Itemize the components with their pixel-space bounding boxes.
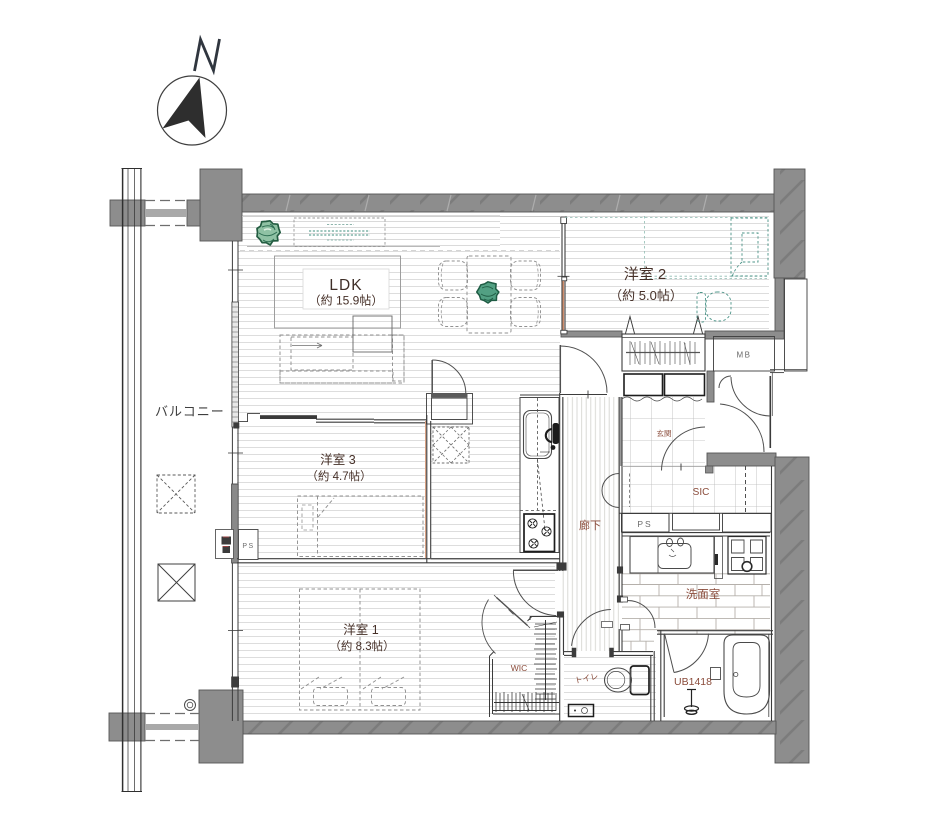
svg-text:洗面室: 洗面室 bbox=[686, 587, 721, 601]
svg-text:LDK: LDK bbox=[329, 277, 362, 294]
svg-text:PS: PS bbox=[637, 519, 652, 529]
svg-text:バルコニー: バルコニー bbox=[155, 404, 225, 419]
svg-text:（約 8.3帖）: （約 8.3帖） bbox=[329, 639, 394, 653]
svg-text:（約 15.9帖）: （約 15.9帖） bbox=[309, 293, 384, 308]
svg-text:MB: MB bbox=[737, 351, 752, 360]
svg-text:PS: PS bbox=[242, 543, 254, 550]
svg-text:UB1418: UB1418 bbox=[674, 676, 712, 688]
svg-text:洋室 2: 洋室 2 bbox=[624, 266, 667, 283]
svg-text:（約 5.0帖）: （約 5.0帖） bbox=[609, 288, 683, 303]
svg-text:洋室 3: 洋室 3 bbox=[320, 452, 355, 467]
svg-text:廊下: 廊下 bbox=[579, 518, 601, 532]
svg-text:（約 4.7帖）: （約 4.7帖） bbox=[306, 469, 371, 483]
svg-text:WIC: WIC bbox=[511, 663, 528, 673]
svg-text:洋室 1: 洋室 1 bbox=[343, 622, 378, 637]
svg-text:SIC: SIC bbox=[693, 487, 710, 498]
svg-text:玄関: 玄関 bbox=[657, 428, 672, 438]
